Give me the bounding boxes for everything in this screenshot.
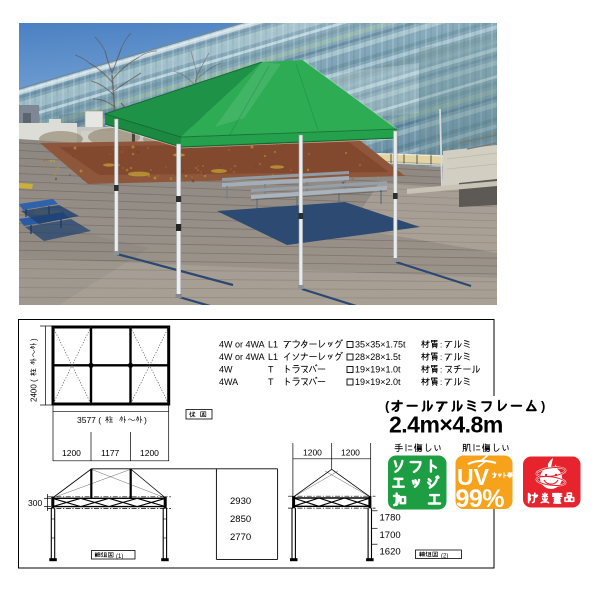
svg-text:4W: 4W: [219, 365, 233, 375]
svg-text:2850: 2850: [230, 514, 251, 525]
svg-text:T: T: [268, 365, 274, 375]
svg-text::: :: [440, 366, 442, 375]
svg-text:1620: 1620: [380, 547, 401, 558]
svg-text:1200: 1200: [341, 448, 360, 458]
svg-text:L1: L1: [268, 340, 278, 350]
svg-text:(1): (1): [116, 554, 123, 560]
svg-text:1200: 1200: [140, 448, 159, 458]
svg-text:(2): (2): [441, 553, 448, 559]
svg-text::: :: [440, 341, 442, 350]
svg-text:1177: 1177: [101, 448, 120, 458]
svg-text::: :: [440, 353, 442, 362]
svg-text:): ): [144, 415, 147, 425]
svg-text:4W or 4WA: 4W or 4WA: [219, 340, 265, 350]
svg-text:2770: 2770: [230, 532, 251, 543]
svg-text:4W or 4WA: 4W or 4WA: [219, 352, 265, 362]
svg-text:3577 (: 3577 (: [77, 415, 101, 425]
svg-text::: :: [440, 378, 442, 387]
svg-text:4WA: 4WA: [219, 377, 238, 387]
svg-text:1780: 1780: [380, 513, 401, 524]
svg-text:19×19×2.0t: 19×19×2.0t: [355, 377, 401, 387]
svg-text:99%: 99%: [456, 485, 505, 513]
svg-text:1200: 1200: [303, 448, 322, 458]
svg-text:19×19×1.0t: 19×19×1.0t: [355, 365, 401, 375]
svg-text:1200: 1200: [62, 448, 81, 458]
svg-text:): ): [541, 399, 545, 414]
svg-text:2.4m×4.8m: 2.4m×4.8m: [389, 412, 503, 438]
svg-text:35×35×1.75t: 35×35×1.75t: [355, 340, 406, 350]
svg-text:2930: 2930: [230, 496, 251, 507]
svg-text:L1: L1: [268, 352, 278, 362]
svg-text:T: T: [268, 377, 274, 387]
svg-text:28×28×1.5t: 28×28×1.5t: [355, 352, 401, 362]
svg-text:300: 300: [28, 498, 42, 508]
svg-text:1700: 1700: [380, 530, 401, 541]
svg-text:2400 (: 2400 (: [30, 379, 39, 402]
svg-text:): ): [30, 338, 39, 341]
